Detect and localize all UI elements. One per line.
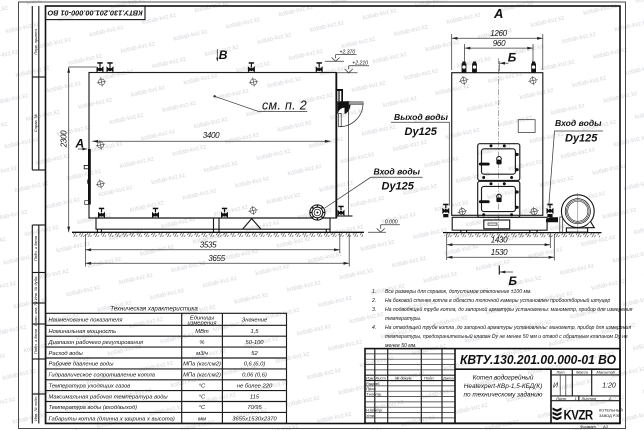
svg-text:Гидравлическое сопротивление к: Гидравлическое сопротивление котла [49,373,156,379]
svg-text:Максимальная рабочая температу: Максимальная рабочая температура воды [49,394,169,400]
svg-text:1.: 1. [372,289,376,295]
svg-text:Подп. и дата: Подп. и дата [33,235,38,261]
svg-text:по техническому заданию: по техническому заданию [464,391,543,399]
svg-text:Номинальная мощность: Номинальная мощность [49,329,117,335]
svg-text:А3: А3 [602,424,609,429]
svg-text:3.: 3. [372,307,376,313]
svg-text:Температура уходящих газов: Температура уходящих газов [49,383,131,389]
svg-text:Температура воды (вход/выход): Температура воды (вход/выход) [49,405,138,411]
svg-text:см. п. 2: см. п. 2 [262,99,307,113]
svg-text:Б: Б [509,274,518,288]
svg-text:ЗАВОД РЭП: ЗАВОД РЭП [599,414,621,418]
svg-text:Изм.: Изм. [366,376,375,381]
svg-text:%: % [199,340,204,346]
svg-text:МПа (кгс/см2): МПа (кгс/см2) [183,373,221,379]
svg-text:KVZR: KVZR [564,408,594,423]
svg-text:°С: °С [199,383,206,389]
svg-text:Диапазон рабочего регулировани: Диапазон рабочего регулирования [48,340,144,346]
svg-text:температуры.: температуры. [385,316,422,322]
svg-text:мм: мм [198,417,206,423]
svg-text:Рабочее давление воды: Рабочее давление воды [49,362,115,368]
svg-text:Значение: Значение [242,318,268,324]
svg-text:Инв. № подл.: Инв. № подл. [33,396,38,421]
svg-text:Лист: Лист [375,376,387,381]
svg-text:Перв. примен.: Перв. примен. [33,28,38,55]
svg-text:Габариты котла (длинна х ширин: Габариты котла (длинна х ширина х высота… [49,417,175,423]
svg-text:№ докум.: № докум. [395,376,413,381]
svg-text:52: 52 [251,351,258,357]
svg-text:2.: 2. [371,298,376,304]
svg-text:На отводящей трубе котла ,до з: На отводящей трубе котла ,до запорной ар… [385,324,631,331]
svg-text:Масштаб: Масштаб [596,370,615,375]
svg-text:КВТУ.130.201.00.000-01 ВО: КВТУ.130.201.00.000-01 ВО [460,352,616,367]
svg-text:3400: 3400 [203,131,220,140]
svg-text:°С: °С [199,405,206,411]
svg-text:1530: 1530 [491,248,508,257]
svg-text:Н.контр.: Н.контр. [366,408,383,413]
svg-text:Все размеры для справок, допус: Все размеры для справок, допустимое откл… [385,289,532,295]
svg-text:измерения: измерения [187,321,216,327]
svg-text:Техническая характеристика: Техническая характеристика [110,306,198,313]
svg-text:Масса: Масса [576,370,589,375]
svg-text:Dy125: Dy125 [382,180,415,192]
svg-text:Подп.: Подп. [424,376,435,381]
svg-text:115: 115 [250,394,260,400]
svg-text:1,5: 1,5 [250,329,259,335]
svg-text:Формат: Формат [580,424,597,429]
svg-text:Т.контр.: Т.контр. [366,392,382,397]
svg-text:На боковой стенке котла в обла: На боковой стенке котла в области топочн… [385,297,610,304]
svg-text:Подп. и дата: Подп. и дата [33,328,38,354]
svg-text:МВт: МВт [195,329,209,335]
svg-text:Пров.: Пров. [366,386,377,391]
svg-text:+2.370: +2.370 [340,49,356,55]
svg-text:МПа (кгс/см2): МПа (кгс/см2) [183,362,221,368]
svg-text:Dy125: Dy125 [405,126,438,138]
svg-text:Расход воды: Расход воды [49,351,84,357]
svg-text:0,6 (6,0): 0,6 (6,0) [244,362,266,368]
svg-text:температуры, предохранительный: температуры, предохранительный клапан Dу… [385,333,628,340]
svg-text:Лит.: Лит. [555,370,565,375]
svg-text:не более 220: не более 220 [237,383,273,389]
svg-text:Листов: Листов [581,396,597,401]
svg-text:Вход воды: Вход воды [555,118,602,128]
svg-text:Heatexpert-КВр-1,5-КБД(К): Heatexpert-КВр-1,5-КБД(К) [464,383,542,390]
svg-text:Разраб.: Разраб. [366,381,380,386]
svg-text:3655: 3655 [208,254,225,263]
svg-text:Б: Б [508,51,517,65]
svg-text:960: 960 [493,39,506,48]
svg-text:1: 1 [575,396,577,401]
svg-text:0.000: 0.000 [385,219,398,225]
svg-text:Дата: Дата [442,376,454,381]
svg-text:Выход воды: Выход воды [394,112,449,122]
svg-text:1:20: 1:20 [602,383,616,390]
svg-text:1430: 1430 [491,235,508,244]
svg-text:3535: 3535 [200,240,217,249]
svg-text:Котел водогрейный: Котел водогрейный [473,374,534,382]
svg-text:1260: 1260 [490,29,507,38]
svg-text:0,06 (0,6): 0,06 (0,6) [242,373,267,379]
svg-text:Инв. № дубл.: Инв. № дубл. [33,276,38,301]
svg-text:+2.210: +2.210 [352,61,368,67]
svg-text:4.: 4. [372,325,376,331]
svg-text:Dy125: Dy125 [565,133,598,145]
svg-text:КОТЕЛЬНЫЙ: КОТЕЛЬНЫЙ [599,409,623,413]
svg-text:Справ. №: Справ. № [33,113,38,132]
svg-text:3655х1530х2370: 3655х1530х2370 [232,417,277,423]
svg-text:°С: °С [199,394,206,400]
svg-text:2300: 2300 [60,130,69,148]
svg-text:Лист: Лист [555,396,567,401]
svg-text:Наименование показателя: Наименование показателя [49,318,123,324]
svg-text:50-100: 50-100 [245,340,264,346]
svg-text:Утв.: Утв. [366,413,375,418]
svg-text:КВТУ.130.201.00.000-01 ВО: КВТУ.130.201.00.000-01 ВО [47,8,142,17]
svg-text:Взам. инв. №: Взам. инв. № [33,300,38,325]
svg-text:На подводящей трубе котла, д: На подводящей трубе котла, до запорной а… [385,306,633,313]
svg-text:м3/ч: м3/ч [196,351,208,357]
svg-text:В: В [219,48,228,62]
svg-text:70/95: 70/95 [247,405,262,411]
svg-text:Вход воды: Вход воды [374,166,421,176]
svg-text:А: А [493,6,503,21]
